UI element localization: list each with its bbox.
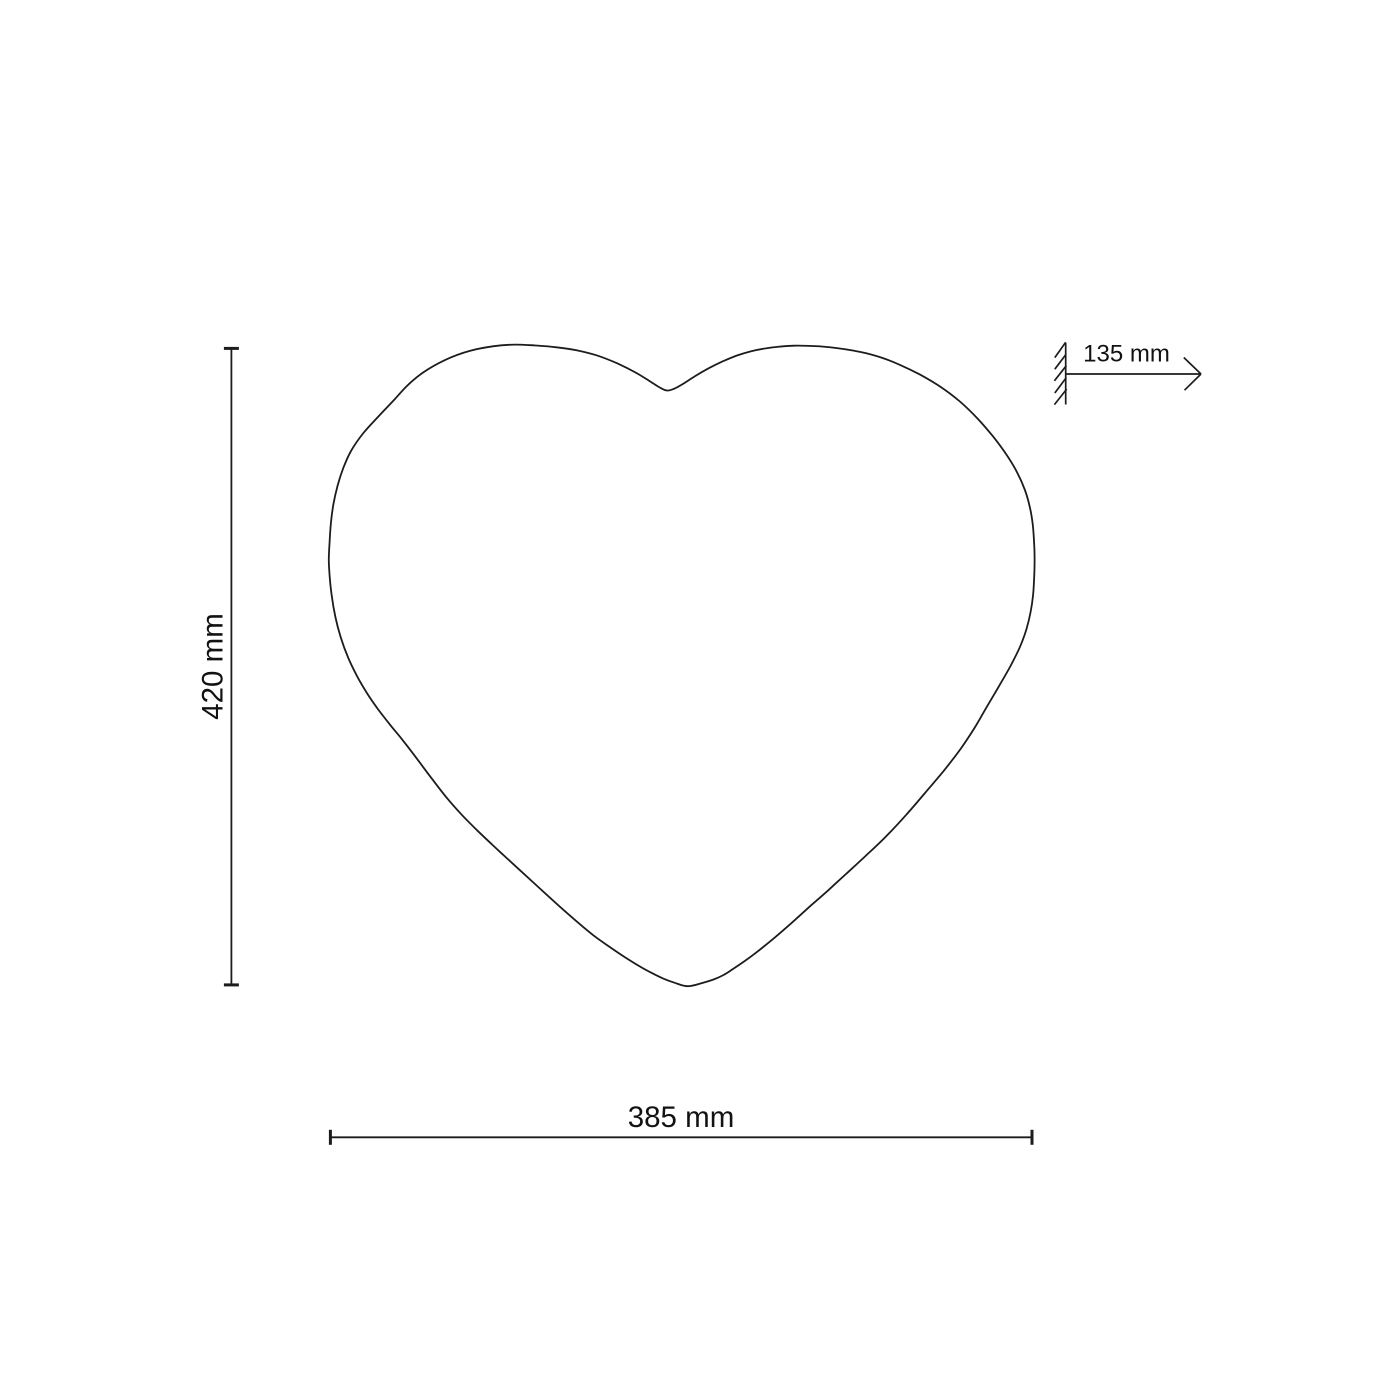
svg-text:420 mm: 420 mm [197, 613, 230, 720]
svg-text:385 mm: 385 mm [628, 1101, 735, 1134]
svg-text:135 mm: 135 mm [1083, 341, 1170, 368]
